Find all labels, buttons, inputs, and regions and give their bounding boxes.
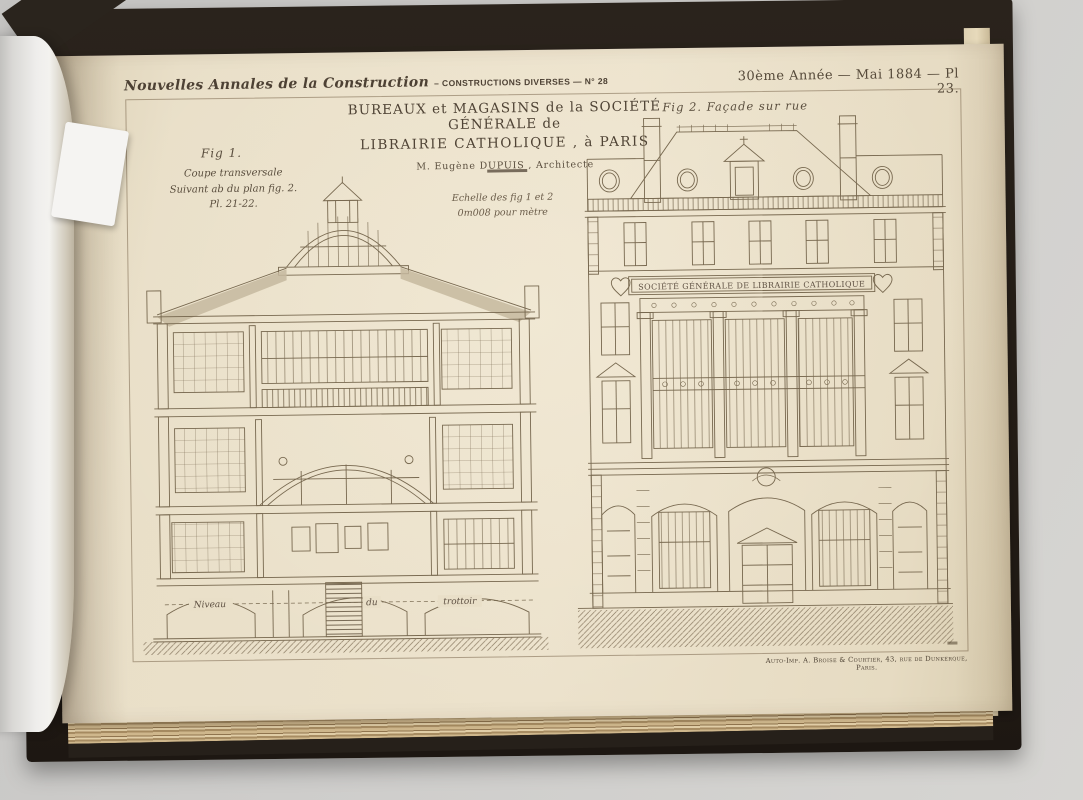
fig1-cross-section-drawing: Niveau du trottoir [137, 172, 548, 657]
journal-header: Nouvelles Annales de la Construction – C… [124, 69, 594, 94]
stone-number-mark [947, 641, 957, 644]
fig1-label: Fig 1. [201, 146, 242, 161]
annotation-du: du [366, 598, 378, 608]
printer-imprint: Auto-Imp. A. Broise & Courtier, 43, rue … [762, 654, 972, 673]
fig2-facade-drawing: SOCIÉTÉ GÉNÉRALE DE LIBRAIRIE CATHOLIQUE [571, 107, 953, 652]
annotation-trottoir: trottoir [443, 597, 477, 607]
annotation-niveau: Niveau [193, 600, 227, 610]
plate-page: Nouvelles Annales de la Construction – C… [54, 44, 1013, 723]
journal-subtitle: – CONSTRUCTIONS DIVERSES — N° 28 [434, 76, 608, 88]
journal-title: Nouvelles Annales de la Construction [124, 74, 429, 94]
